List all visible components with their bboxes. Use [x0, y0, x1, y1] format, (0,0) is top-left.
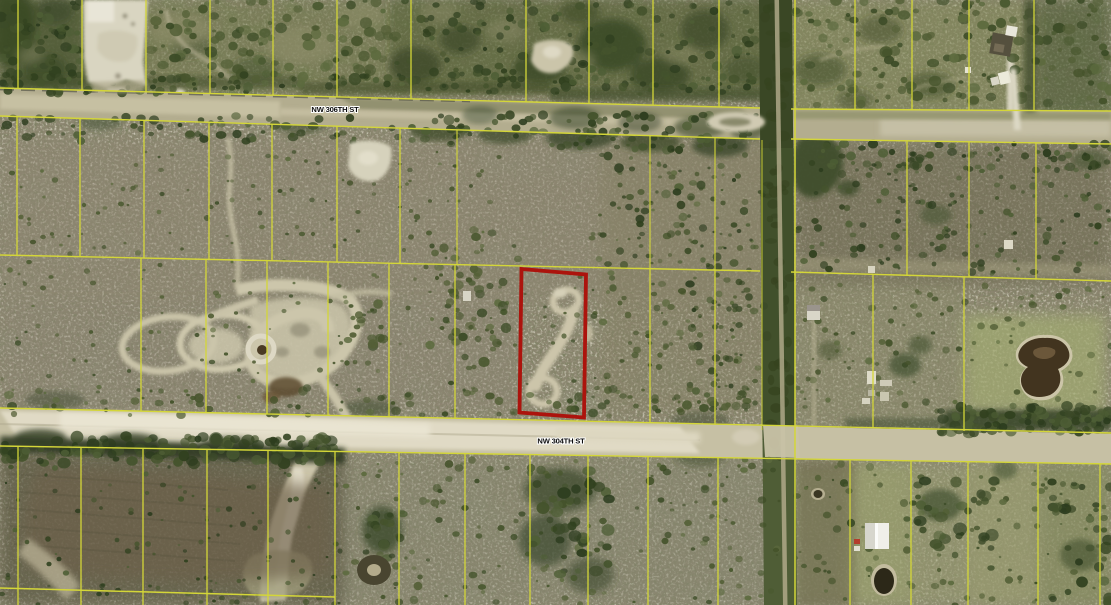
- svg-text:NW 304TH ST: NW 304TH ST: [537, 437, 585, 446]
- svg-text:NW 306TH ST: NW 306TH ST: [311, 105, 359, 114]
